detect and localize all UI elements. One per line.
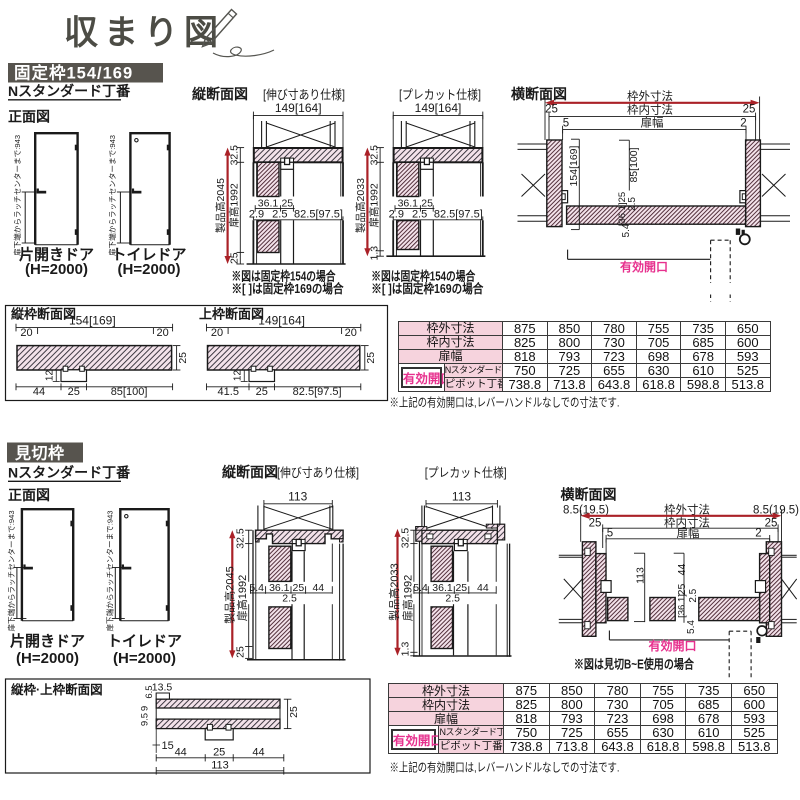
- svg-text:片開きドア: 片開きドア: [10, 632, 85, 650]
- svg-text:32.5: 32.5: [229, 145, 241, 166]
- svg-text:枠外寸法: 枠外寸法: [664, 503, 710, 517]
- svg-text:縦枠断面図: 縦枠断面図: [11, 307, 76, 322]
- svg-text:※図は見切B~E使用の場合: ※図は見切B~E使用の場合: [574, 657, 694, 672]
- svg-text:149[164]: 149[164]: [275, 101, 322, 115]
- svg-text:25: 25: [589, 518, 602, 530]
- svg-text:縦断面図: 縦断面図: [192, 86, 248, 102]
- svg-text:85[100]: 85[100]: [628, 147, 640, 182]
- svg-text:154[169]: 154[169]: [568, 145, 580, 186]
- svg-text:※上記の有効開口は,レバーハンドルなしでの寸法です.: ※上記の有効開口は,レバーハンドルなしでの寸法です.: [390, 760, 620, 775]
- svg-text:6.5: 6.5: [144, 685, 155, 698]
- svg-text:2.5: 2.5: [627, 197, 638, 211]
- svg-text:154[169]: 154[169]: [69, 314, 116, 328]
- svg-text:25: 25: [68, 386, 80, 398]
- svg-text:[伸び寸あり仕様]: [伸び寸あり仕様]: [263, 87, 345, 102]
- svg-text:25: 25: [676, 584, 688, 596]
- svg-text:扉幅: 扉幅: [677, 527, 700, 540]
- svg-text:20: 20: [156, 327, 168, 339]
- svg-text:12: 12: [44, 370, 55, 382]
- svg-text:44: 44: [33, 386, 45, 398]
- svg-text:縦枠·上枠断面図: 縦枠·上枠断面図: [11, 682, 103, 697]
- svg-text:25: 25: [256, 386, 268, 398]
- svg-text:25: 25: [545, 104, 558, 116]
- svg-text:[36.1]: [36.1]: [676, 594, 687, 618]
- svg-text:有効開口: 有効開口: [648, 638, 696, 653]
- svg-text:有効開口: 有効開口: [620, 259, 668, 274]
- svg-text:5: 5: [607, 528, 613, 540]
- svg-text:5.4: 5.4: [249, 582, 264, 594]
- svg-text:2.5: 2.5: [688, 588, 699, 602]
- svg-text:横断面図: 横断面図: [561, 487, 617, 503]
- svg-text:扉下端からラッチセンターまで:943: 扉下端からラッチセンターまで:943: [6, 510, 16, 631]
- svg-text:44: 44: [477, 582, 489, 594]
- svg-text:2.9: 2.9: [249, 208, 264, 220]
- svg-text:正面図: 正面図: [8, 487, 50, 503]
- svg-text:32.5: 32.5: [399, 528, 411, 549]
- svg-text:収まり図: 収まり図: [64, 14, 224, 52]
- svg-text:25: 25: [288, 706, 300, 718]
- svg-text:製品高2045: 製品高2045: [214, 178, 227, 233]
- svg-text:横断面図: 横断面図: [511, 86, 567, 102]
- svg-text:見切枠: 見切枠: [14, 444, 65, 463]
- svg-text:20: 20: [345, 327, 357, 339]
- svg-text:扉高1992: 扉高1992: [400, 575, 414, 621]
- svg-text:枠内寸法: 枠内寸法: [627, 103, 673, 117]
- svg-text:(H=2000): (H=2000): [25, 261, 88, 278]
- svg-text:1.3: 1.3: [368, 246, 380, 261]
- svg-text:2.5: 2.5: [445, 593, 460, 605]
- svg-text:44: 44: [252, 746, 264, 758]
- svg-text:Nスタンダード丁番: Nスタンダード丁番: [8, 465, 131, 481]
- svg-text:32.5: 32.5: [368, 145, 380, 166]
- svg-text:扉高1992: 扉高1992: [367, 183, 380, 228]
- svg-text:[プレカット仕様]: [プレカット仕様]: [399, 87, 481, 102]
- svg-text:製品高2045: 製品高2045: [222, 566, 236, 623]
- svg-text:12: 12: [232, 370, 243, 382]
- svg-text:25: 25: [743, 104, 756, 116]
- svg-text:※上記の有効開口は,レバーハンドルなしでの寸法です.: ※上記の有効開口は,レバーハンドルなしでの寸法です.: [390, 395, 620, 410]
- svg-text:113: 113: [634, 567, 646, 584]
- svg-text:82.5[97.5]: 82.5[97.5]: [294, 208, 343, 220]
- svg-text:25: 25: [234, 646, 246, 658]
- svg-text:2.9: 2.9: [389, 208, 404, 220]
- svg-text:20: 20: [211, 327, 223, 339]
- svg-text:[プレカット仕様]: [プレカット仕様]: [425, 465, 507, 480]
- svg-text:25: 25: [365, 352, 377, 364]
- svg-text:2.5: 2.5: [272, 208, 287, 220]
- svg-text:9: 9: [140, 706, 151, 711]
- svg-text:※[ ]は固定枠169の場合: ※[ ]は固定枠169の場合: [371, 281, 483, 296]
- svg-text:縦断面図: 縦断面図: [222, 464, 278, 480]
- svg-text:15: 15: [162, 740, 174, 752]
- svg-text:製品高2033: 製品高2033: [387, 563, 401, 620]
- svg-text:[伸び寸あり仕様]: [伸び寸あり仕様]: [277, 465, 359, 480]
- svg-text:扉高1992: 扉高1992: [235, 575, 249, 621]
- svg-text:82.5[97.5]: 82.5[97.5]: [293, 386, 342, 398]
- svg-text:44: 44: [676, 564, 688, 576]
- svg-text:扉高1992: 扉高1992: [227, 183, 240, 228]
- svg-text:25: 25: [177, 352, 189, 364]
- svg-text:製品高2033: 製品高2033: [354, 178, 367, 233]
- svg-text:5.4: 5.4: [413, 582, 428, 594]
- svg-text:※[ ]は固定枠169の場合: ※[ ]は固定枠169の場合: [232, 281, 344, 296]
- svg-text:9.5: 9.5: [140, 713, 151, 726]
- svg-text:トイレドア: トイレドア: [107, 633, 182, 650]
- svg-text:82.5[97.5]: 82.5[97.5]: [434, 208, 483, 220]
- svg-text:固定枠154/169: 固定枠154/169: [14, 63, 133, 83]
- svg-text:枠外寸法: 枠外寸法: [627, 89, 673, 103]
- svg-text:2: 2: [755, 528, 761, 540]
- svg-text:1.3: 1.3: [399, 642, 411, 657]
- svg-text:上枠断面図: 上枠断面図: [199, 307, 264, 322]
- svg-text:149[164]: 149[164]: [415, 101, 462, 115]
- svg-text:(H=2000): (H=2000): [118, 261, 181, 278]
- svg-text:扉下端からラッチセンターまで:943: 扉下端からラッチセンターまで:943: [104, 510, 114, 631]
- svg-text:扉下端からラッチセンターまで:943: 扉下端からラッチセンターまで:943: [107, 135, 117, 256]
- svg-text:25: 25: [229, 252, 241, 264]
- svg-text:85[100]: 85[100]: [111, 386, 148, 398]
- svg-text:2.5: 2.5: [412, 208, 427, 220]
- svg-text:149[164]: 149[164]: [258, 314, 305, 328]
- svg-text:2.5: 2.5: [282, 593, 297, 605]
- svg-text:20: 20: [20, 327, 32, 339]
- svg-text:44: 44: [175, 746, 187, 758]
- svg-text:5.4: 5.4: [686, 620, 697, 634]
- svg-text:113: 113: [452, 490, 471, 504]
- svg-text:5: 5: [563, 118, 569, 130]
- svg-text:扉幅: 扉幅: [641, 117, 664, 130]
- svg-text:113: 113: [288, 490, 307, 504]
- svg-text:32.5: 32.5: [234, 528, 246, 549]
- svg-text:44: 44: [312, 582, 324, 594]
- svg-text:Nスタンダード丁番: Nスタンダード丁番: [8, 83, 131, 99]
- svg-text:5.4: 5.4: [621, 223, 632, 237]
- svg-text:(H=2000): (H=2000): [113, 650, 176, 667]
- svg-text:25: 25: [213, 746, 225, 758]
- svg-text:113: 113: [211, 759, 229, 771]
- svg-text:(H=2000): (H=2000): [16, 650, 79, 667]
- svg-text:41.5: 41.5: [218, 386, 239, 398]
- svg-text:正面図: 正面図: [8, 109, 50, 125]
- svg-text:25: 25: [765, 518, 778, 530]
- svg-text:扉下端からラッチセンターまで:943: 扉下端からラッチセンターまで:943: [12, 135, 22, 256]
